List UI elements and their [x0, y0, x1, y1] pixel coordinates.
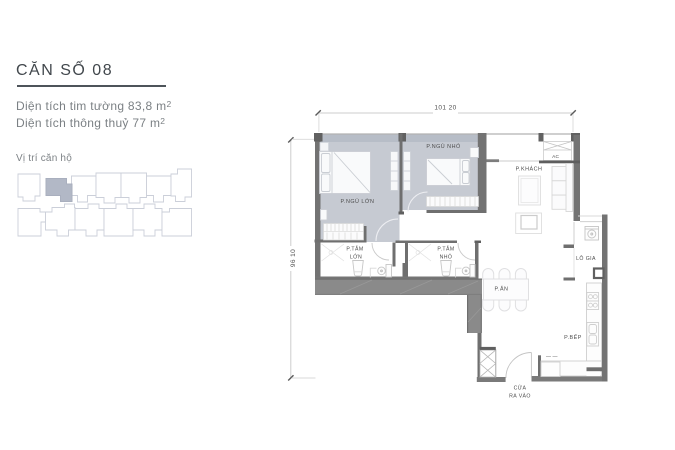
svg-text:NHỎ: NHỎ: [440, 254, 453, 261]
svg-text:P.KHÁCH: P.KHÁCH: [516, 166, 543, 173]
svg-text:CỬA: CỬA: [514, 385, 527, 392]
svg-text:P.BẾP: P.BẾP: [564, 334, 582, 341]
svg-text:LỚN: LỚN: [350, 254, 362, 261]
svg-text:P.TẮM: P.TẮM: [346, 245, 363, 253]
svg-text:P.NGỦ NHỎ: P.NGỦ NHỎ: [426, 143, 460, 150]
svg-text:LÔ GIA: LÔ GIA: [576, 255, 596, 262]
svg-text:P.ĂN: P.ĂN: [495, 286, 509, 293]
svg-text:P.NGỦ LỚN: P.NGỦ LỚN: [341, 198, 375, 205]
svg-text:RA VÀO: RA VÀO: [509, 393, 531, 400]
svg-text:P.TẮM: P.TẮM: [437, 245, 454, 253]
